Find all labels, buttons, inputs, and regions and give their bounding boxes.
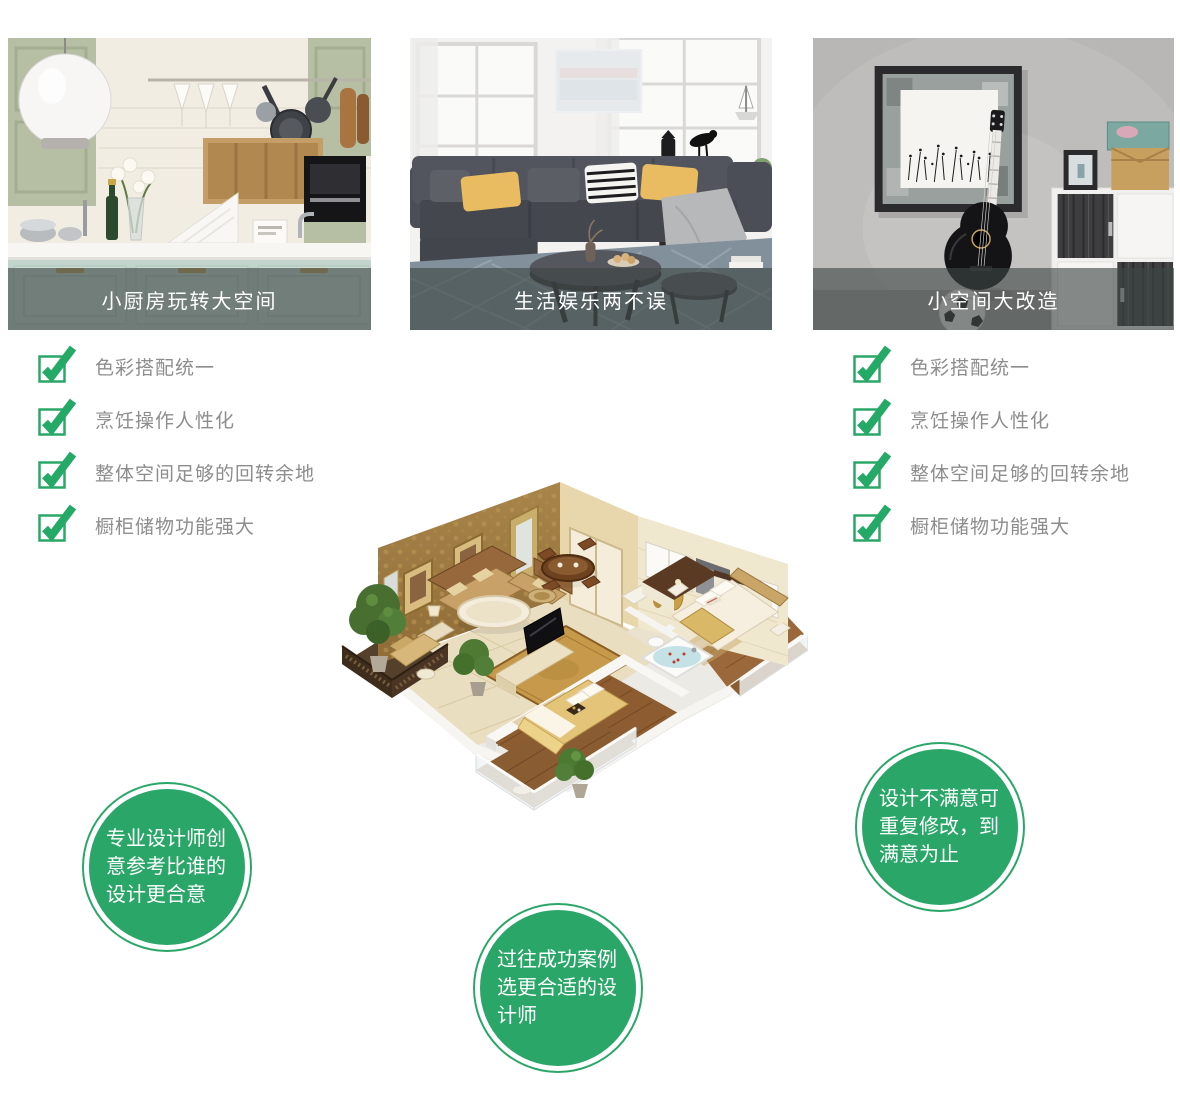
card-caption: 小空间大改造 <box>928 285 1060 314</box>
floorplan-svg <box>326 478 808 838</box>
check-icon <box>38 449 76 489</box>
card-caption-band: 小厨房玩转大空间 <box>8 268 371 330</box>
checklist-item-label: 橱柜储物功能强大 <box>910 515 1070 541</box>
framed-art <box>875 66 1028 218</box>
wall-art <box>556 50 642 112</box>
card-caption-band: 生活娱乐两不误 <box>410 268 772 330</box>
cabinet-door-dark-1 <box>1058 194 1114 258</box>
badge-text: 专业设计师创意参考比谁的设计更合意 <box>106 825 228 909</box>
page: 小厨房玩转大空间 <box>0 0 1180 1095</box>
feature-card-smallspace[interactable]: 小空间大改造 <box>813 38 1174 330</box>
checklist-item-label: 橱柜储物功能强大 <box>95 515 255 541</box>
checklist-item-label: 烹饪操作人性化 <box>910 409 1050 435</box>
check-icon <box>853 449 891 489</box>
check-icon <box>38 396 76 436</box>
card-caption: 小厨房玩转大空间 <box>102 285 278 314</box>
toilet <box>648 637 664 647</box>
check-icon <box>38 343 76 383</box>
checklist-item-label: 烹饪操作人性化 <box>95 409 235 435</box>
check-icon <box>853 396 891 436</box>
checklist-item-label: 色彩搭配统一 <box>910 356 1030 382</box>
check-icon <box>853 502 891 542</box>
badge-text: 过往成功案例选更合适的设计师 <box>497 946 619 1030</box>
feature-card-living[interactable]: 生活娱乐两不误 <box>410 38 772 330</box>
checklist-item-label: 整体空间足够的回转余地 <box>910 462 1130 488</box>
badge-text: 设计不满意可重复修改，到满意为止 <box>879 785 1001 869</box>
checklist-item-label: 色彩搭配统一 <box>95 356 215 382</box>
revision-badge: 设计不满意可重复修改，到满意为止 <box>857 744 1023 910</box>
cutting-boards <box>340 88 369 148</box>
designer-badge: 专业设计师创意参考比谁的设计更合意 <box>84 784 250 950</box>
check-icon <box>853 343 891 383</box>
oven <box>304 156 366 248</box>
cases-badge: 过往成功案例选更合适的设计师 <box>475 905 641 1071</box>
floorplan-illustration <box>326 478 808 838</box>
checklist-item-label: 整体空间足够的回转余地 <box>95 462 315 488</box>
card-caption: 生活娱乐两不误 <box>514 285 668 314</box>
check-icon <box>38 502 76 542</box>
card-caption-band: 小空间大改造 <box>813 268 1174 330</box>
feature-card-kitchen[interactable]: 小厨房玩转大空间 <box>8 38 371 330</box>
